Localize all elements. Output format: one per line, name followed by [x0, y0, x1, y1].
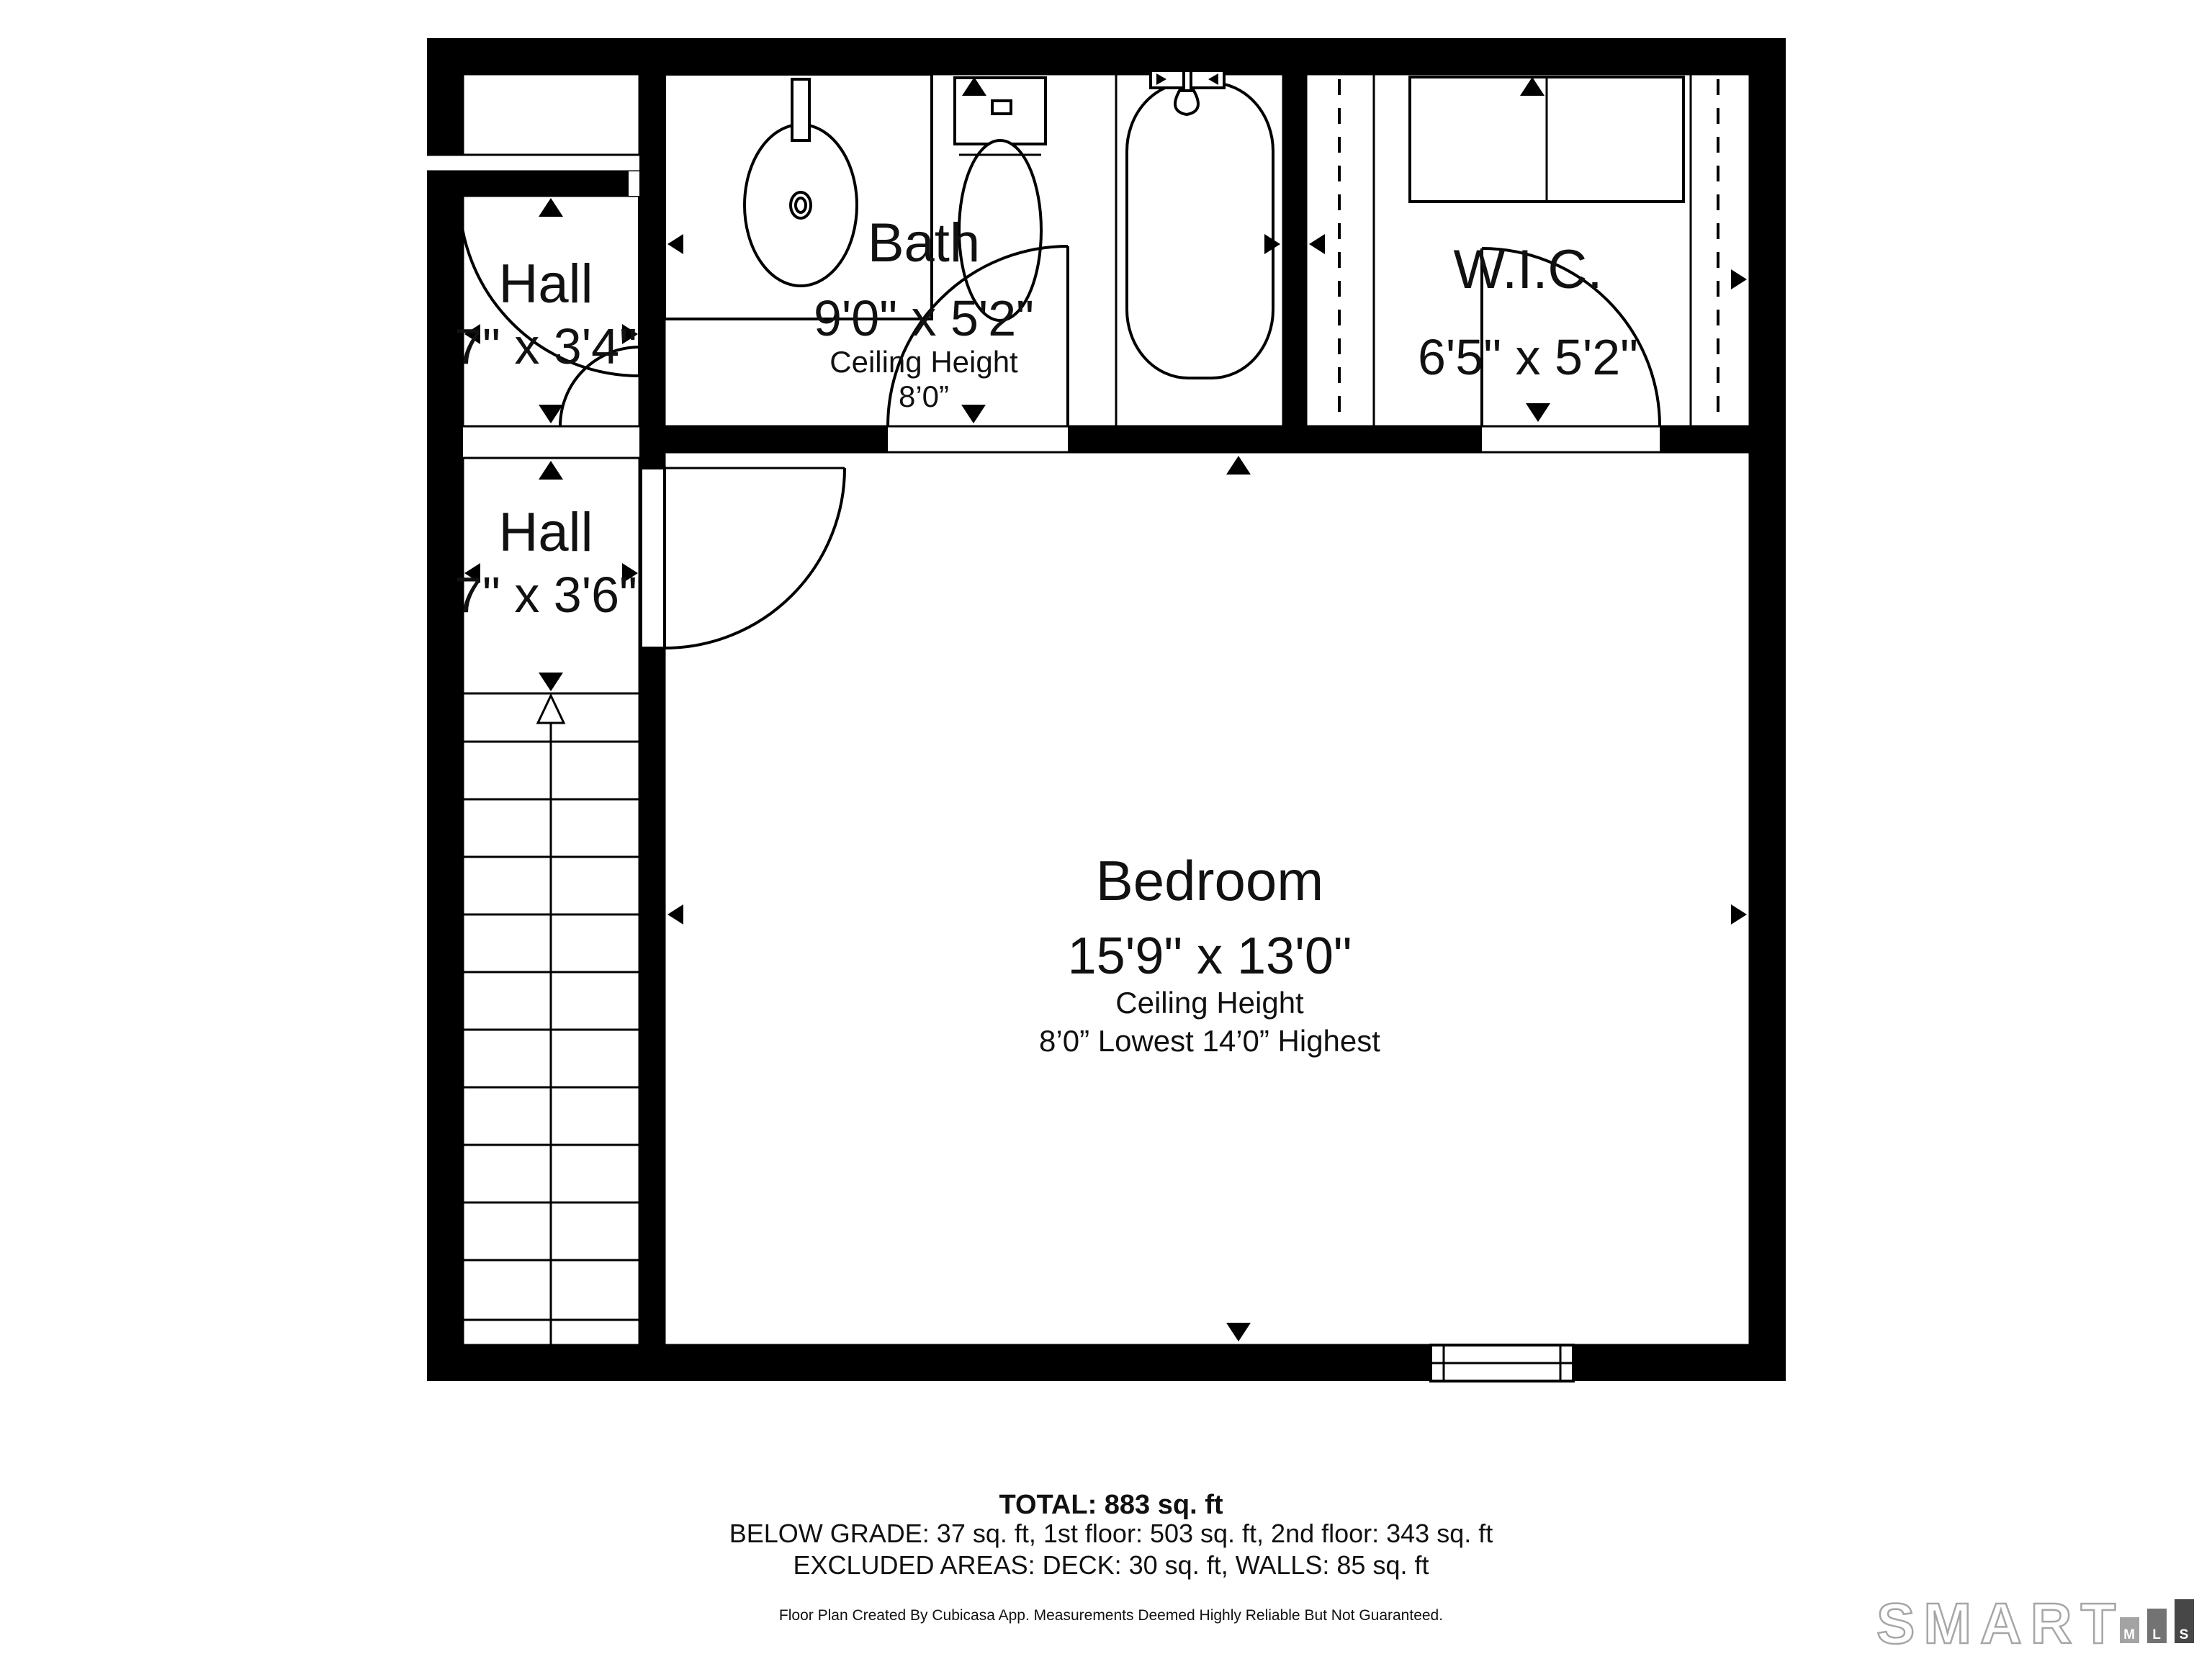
- wic-dims: 6'5" x 5'2": [1418, 329, 1638, 385]
- bath-ceiling-value: 8’0”: [899, 379, 949, 413]
- hall2-dims: 7" x 3'6": [454, 567, 637, 623]
- hall2-label: Hall: [499, 502, 593, 563]
- toilet-flush-button: [992, 101, 1011, 114]
- bath-dims: 9'0" x 5'2": [814, 290, 1034, 346]
- bedroom-dims: 15'9" x 13'0": [1068, 927, 1352, 985]
- floorplan-page: Hall 7" x 3'4" Bath 9'0" x 5'2" Ceiling …: [0, 0, 2212, 1659]
- landing-window-band: [427, 155, 639, 171]
- wall-bath-bedroom-left: [665, 426, 888, 452]
- summary-breakdown: BELOW GRADE: 37 sq. ft, 1st floor: 503 s…: [729, 1519, 1493, 1548]
- landing-door-gap: [629, 171, 639, 196]
- wall-hall-upper: [639, 74, 665, 468]
- wall-left: [427, 38, 463, 1381]
- logo-bar-s-letter: S: [2180, 1627, 2189, 1642]
- bath-ceiling-label: Ceiling Height: [829, 345, 1018, 379]
- tub-spout-icon: [1175, 91, 1198, 114]
- bedroom-label: Bedroom: [1096, 849, 1324, 912]
- bedroom-ceiling-value: 8’0” Lowest 14’0” Highest: [1039, 1024, 1380, 1058]
- bath-label: Bath: [868, 212, 980, 274]
- wall-right: [1750, 38, 1786, 1381]
- logo-wordmark: SMART: [1876, 1591, 2124, 1655]
- summary-total: TOTAL: 883 sq. ft: [999, 1490, 1223, 1520]
- summary-excluded: EXCLUDED AREAS: DECK: 30 sq. ft, WALLS: …: [793, 1550, 1429, 1580]
- wall-bath-bedroom-right: [1068, 426, 1482, 452]
- logo-bar-m-letter: M: [2123, 1627, 2135, 1642]
- landing-area: [463, 74, 639, 155]
- wall-landing-hall: [463, 171, 629, 196]
- bedroom-ceiling-label: Ceiling Height: [1115, 986, 1304, 1020]
- bath-doorway: [888, 426, 1068, 452]
- wall-bath-wic: [1283, 74, 1306, 426]
- logo-bar-l-letter: L: [2152, 1627, 2161, 1642]
- hall1-label: Hall: [499, 253, 593, 315]
- tub-faucet-pipe: [1184, 71, 1191, 91]
- sink-drain-inner: [796, 198, 806, 212]
- wall-stairs-bedroom: [639, 648, 665, 1345]
- summary-disclaimer: Floor Plan Created By Cubicasa App. Meas…: [779, 1607, 1443, 1624]
- hall1-dims: 7" x 3'4": [454, 318, 637, 374]
- sink-faucet-icon: [792, 79, 809, 140]
- hall-divider-opening: [463, 426, 639, 458]
- floorplan-drawing: Hall 7" x 3'4" Bath 9'0" x 5'2" Ceiling …: [0, 0, 2212, 1659]
- bedroom-window: [1431, 1345, 1573, 1381]
- wall-bottom: [427, 1345, 1786, 1381]
- wic-doorway: [1482, 426, 1660, 452]
- bedroom-door-leaf: [641, 468, 665, 648]
- wic-label: W.I.C.: [1454, 239, 1603, 300]
- wall-top: [427, 38, 1786, 74]
- wall-wic-bedroom: [1660, 426, 1750, 452]
- bathtub-icon: [1127, 83, 1273, 378]
